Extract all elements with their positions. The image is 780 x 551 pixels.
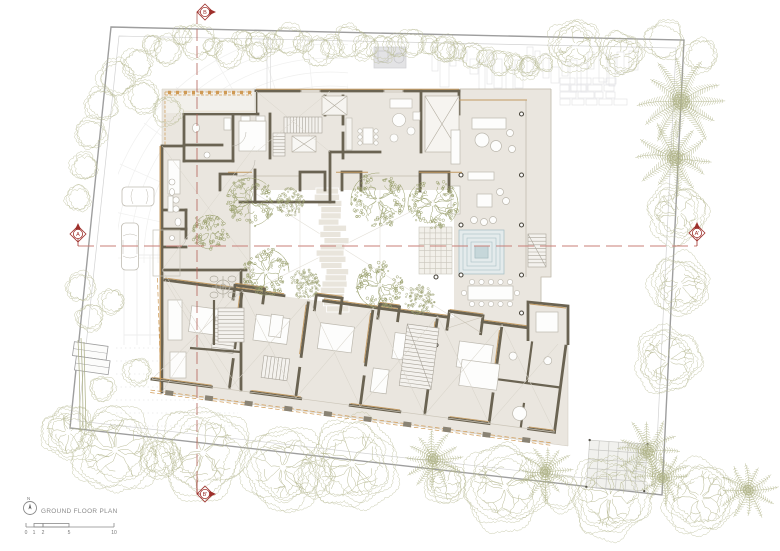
svg-text:A': A' bbox=[695, 231, 700, 237]
svg-text:GROUND FLOOR PLAN: GROUND FLOOR PLAN bbox=[41, 508, 118, 515]
svg-text:1: 1 bbox=[33, 530, 36, 536]
svg-text:5: 5 bbox=[68, 530, 71, 536]
svg-text:10: 10 bbox=[111, 530, 117, 536]
svg-text:A: A bbox=[76, 232, 80, 238]
svg-text:B: B bbox=[203, 10, 207, 16]
svg-text:2: 2 bbox=[42, 530, 45, 536]
svg-text:B': B' bbox=[203, 492, 208, 498]
svg-text:N: N bbox=[27, 496, 30, 501]
svg-text:0: 0 bbox=[25, 530, 28, 536]
